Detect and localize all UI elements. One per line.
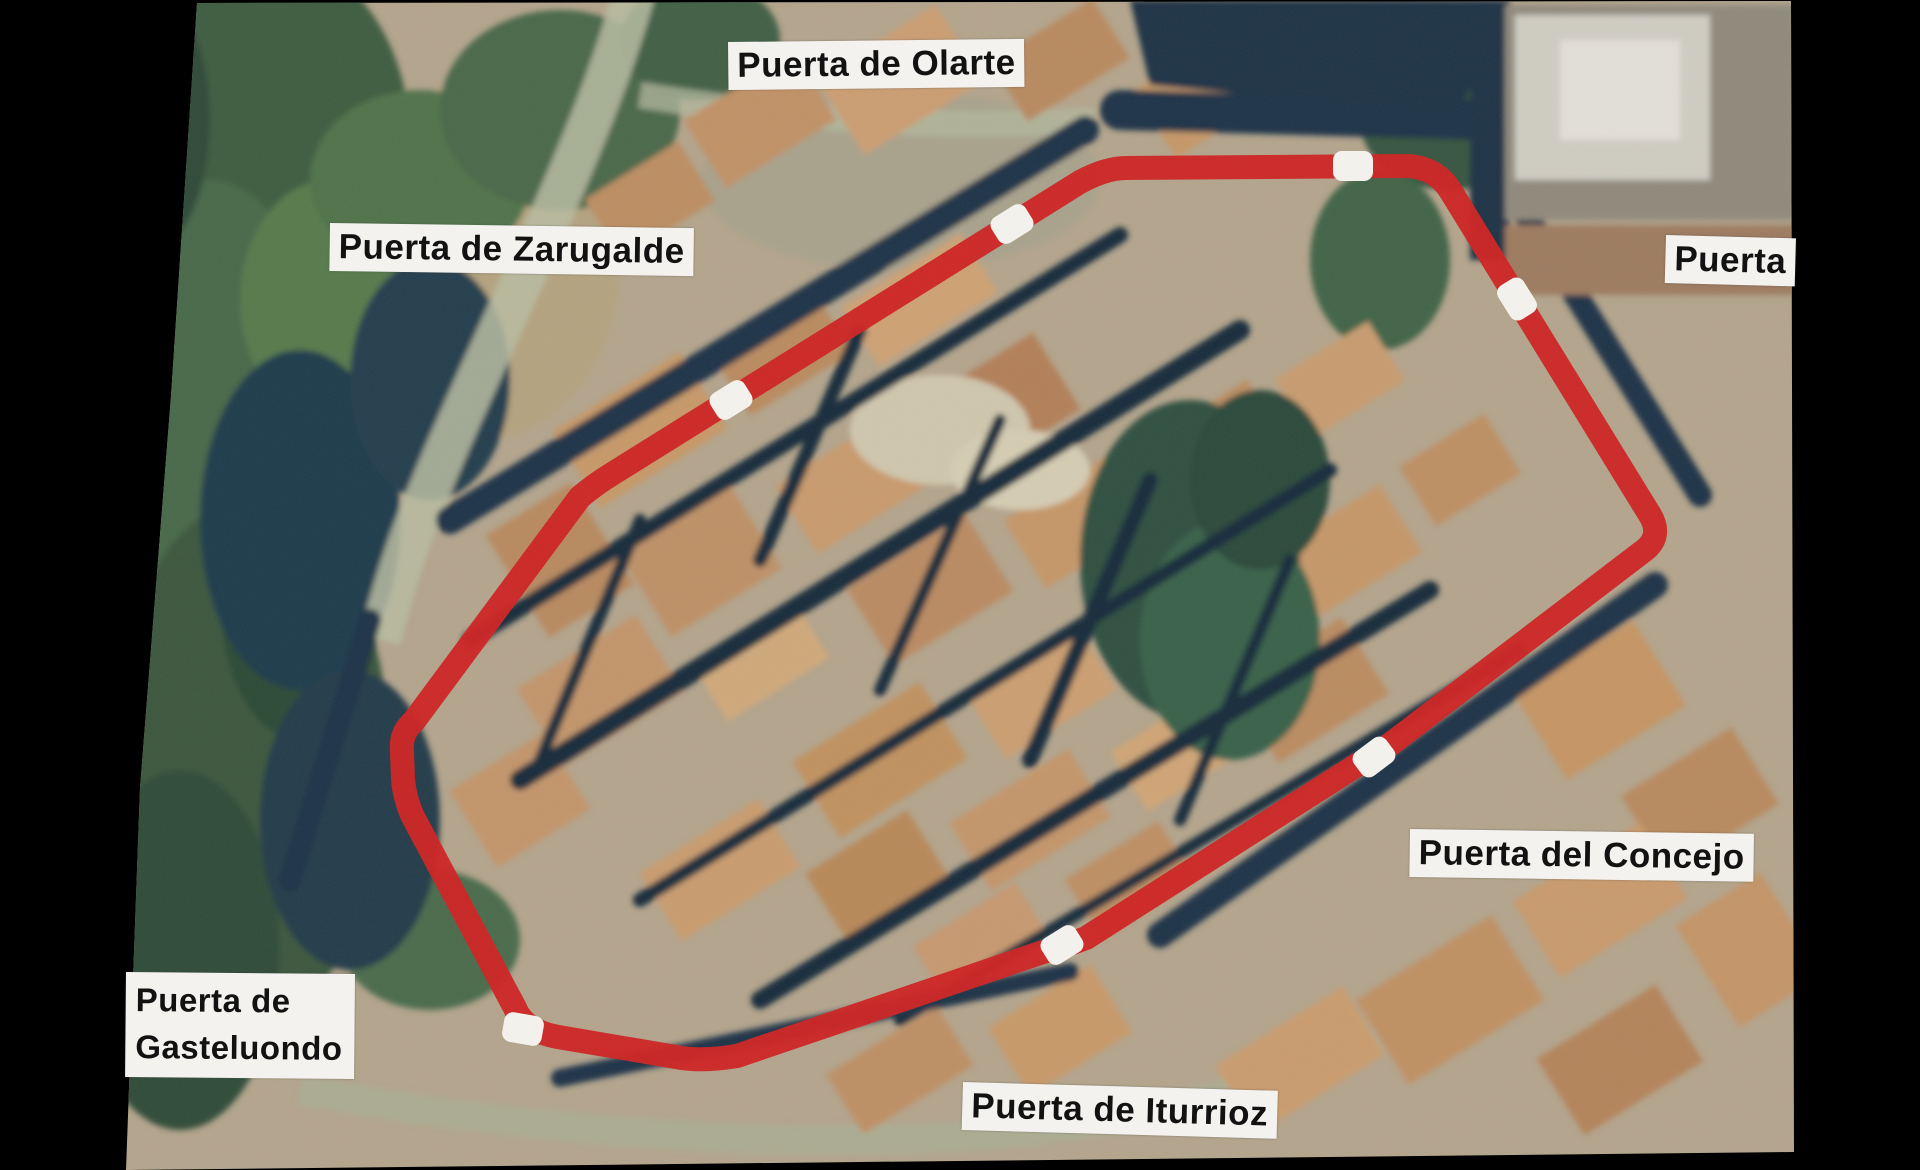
label-puerta-de-gasteluondo: Puerta de Gasteluondo — [125, 972, 355, 1079]
label-puerta-de-zarugalde: Puerta de Zarugalde — [329, 223, 694, 276]
label-gasteluondo-line1: Puerta de — [136, 977, 344, 1026]
label-puerta-del-concejo: Puerta del Concejo — [1409, 829, 1754, 882]
slide-canvas: Puerta de Olarte Puerta de Zarugalde Pue… — [0, 0, 1920, 1170]
label-puerta-de-iturrioz: Puerta de Iturrioz — [962, 1082, 1278, 1139]
label-puerta-east: Puerta — [1665, 235, 1796, 287]
label-puerta-de-olarte: Puerta de Olarte — [728, 39, 1025, 90]
label-gasteluondo-line2: Gasteluondo — [135, 1024, 343, 1073]
